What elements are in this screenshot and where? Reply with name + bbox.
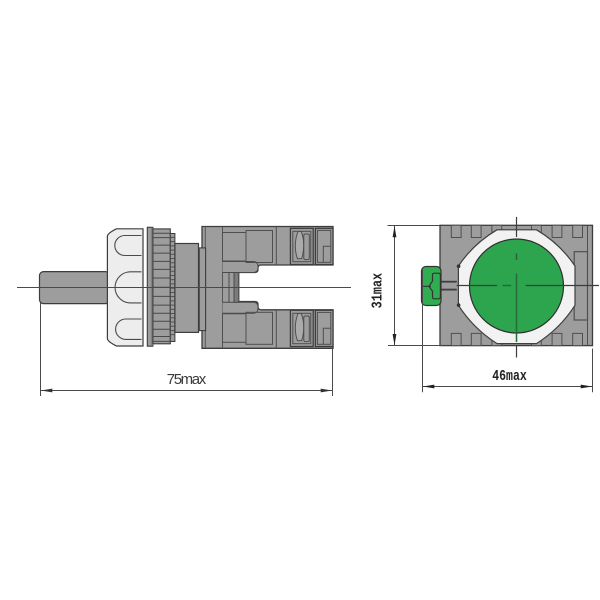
svg-text:31max: 31max (371, 273, 387, 309)
svg-text:75max: 75max (167, 371, 207, 388)
svg-text:46max: 46max (492, 369, 527, 385)
